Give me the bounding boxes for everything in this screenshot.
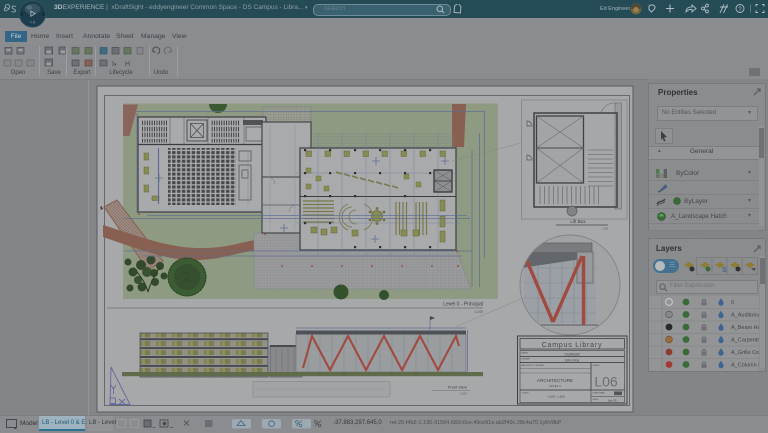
svg-text:1:50: 1:50 [602, 227, 608, 231]
svg-text:A_Beam Hatch: A_Beam Hatch [731, 325, 759, 331]
svg-text:L06: L06 [594, 374, 618, 390]
svg-text:Level 0 - Principal: Level 0 - Principal [443, 302, 483, 308]
svg-text:Undo: Undo [154, 70, 169, 76]
svg-text:Lift Box: Lift Box [570, 219, 586, 224]
svg-text:S: S [722, 267, 727, 274]
svg-text:0: 0 [731, 300, 734, 306]
svg-text:LEVEL 0: LEVEL 0 [549, 384, 561, 388]
svg-text:ARCHITECT OR FIRM: ARCHITECT OR FIRM [522, 364, 544, 367]
svg-text:1:100 / 1:200: 1:100 / 1:200 [547, 395, 565, 399]
svg-text:H: H [125, 61, 130, 68]
svg-text:A_Carpentry: A_Carpentry [731, 338, 759, 344]
svg-text:John Doe: John Doe [565, 358, 580, 362]
svg-text:DraftSight: DraftSight [564, 352, 579, 356]
svg-text:SCALE: SCALE [522, 392, 530, 395]
svg-text:Lifecycle: Lifecycle [109, 70, 133, 76]
svg-text:Export: Export [73, 70, 91, 76]
svg-text:A_Auditorium St...: A_Auditorium St... [731, 313, 759, 319]
svg-text:V.R: V.R [30, 21, 36, 25]
svg-text:Open: Open [11, 70, 26, 76]
svg-text:ARCHITECTURE: ARCHITECTURE [537, 378, 573, 383]
svg-text:Campus Library: Campus Library [542, 342, 603, 349]
svg-text:A_Column Hatch: A_Column Hatch [731, 363, 759, 369]
svg-text:A_Grille Colum...: A_Grille Colum... [731, 350, 759, 356]
svg-text:Jan-05: Jan-05 [607, 399, 617, 403]
svg-text:NAME: NAME [522, 352, 529, 355]
svg-text:1:200: 1:200 [475, 310, 484, 314]
svg-text:SHEET: SHEET [593, 365, 601, 367]
svg-text:Front View: Front View [448, 385, 467, 390]
svg-text:1:100: 1:100 [459, 392, 467, 396]
svg-text:I▾: I▾ [112, 61, 117, 68]
svg-text:OWNER: OWNER [522, 359, 531, 361]
svg-text:Save: Save [47, 70, 61, 76]
svg-text:DATE: DATE [593, 398, 599, 401]
svg-text:DRAFTMAN: DRAFTMAN [593, 392, 606, 395]
